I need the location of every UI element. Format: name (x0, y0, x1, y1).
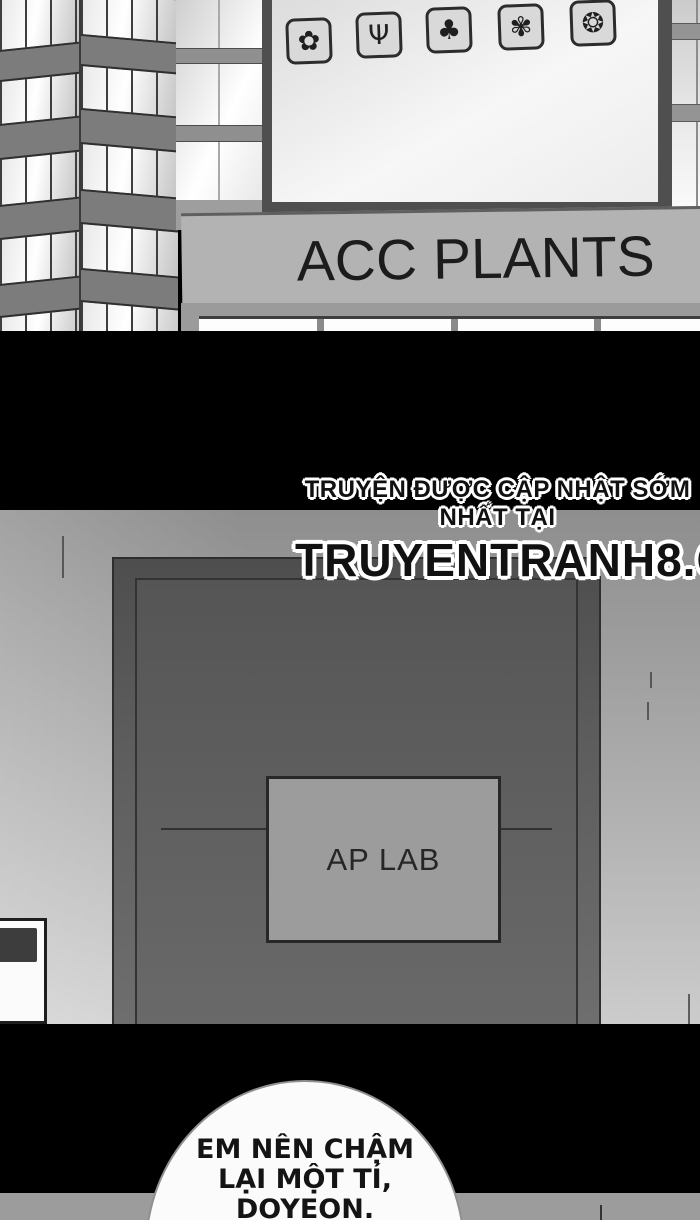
watermark-site-url: TRUYENTRANH8.COM (295, 533, 700, 587)
lab-door-sign-text: AP LAB (326, 842, 440, 878)
building-right-face (79, 0, 178, 331)
plant-shop-signboard: ✿ Ψ ♣ ✾ ❂ (262, 0, 672, 214)
building-left-face (0, 0, 79, 331)
panel-line-mark (600, 1205, 602, 1220)
window-row (0, 230, 79, 286)
comic-page: ✿ Ψ ♣ ✾ ❂ ACC PLANTS (0, 0, 700, 1220)
panel-city-night: ✿ Ψ ♣ ✾ ❂ ACC PLANTS (0, 0, 700, 331)
window-row (0, 150, 79, 207)
edge-building (672, 0, 700, 215)
facade-band (176, 125, 264, 142)
clover-icon: ♣ (425, 6, 473, 54)
sunflower-icon: ❂ (569, 0, 617, 47)
storefront (181, 303, 700, 331)
window-row (81, 142, 178, 199)
storefront-post (594, 319, 601, 331)
watermark-tagline: TRUYỆN ĐƯỢC CẬP NHẬT SỚM NHẤT TẠI (295, 476, 700, 532)
window-mullion (218, 0, 220, 230)
wall-scratch (647, 702, 649, 720)
facade-band (672, 104, 700, 122)
lab-door-panel: AP LAB (135, 578, 578, 1024)
speech-bubble-text: EM NÊN CHẬM LẠI MỘT TÍ, DOYEON. ĐỪNG ÉP … (145, 1135, 465, 1220)
site-watermark: TRUYỆN ĐƯỢC CẬP NHẬT SỚM NHẤT TẠI TRUYEN… (295, 476, 700, 587)
shop-banner-text: ACC PLANTS (181, 223, 700, 296)
wall-scratch (62, 536, 64, 578)
kiosk-screen (0, 928, 37, 962)
shop-banner: ACC PLANTS (181, 206, 700, 312)
wall-scratch (650, 672, 652, 688)
lab-door: AP LAB (112, 557, 601, 1024)
storefront-glass (199, 316, 700, 331)
rose-icon: ✿ (285, 17, 333, 65)
storefront-post (317, 319, 324, 331)
cactus-icon: Ψ (355, 11, 403, 59)
lab-door-sign: AP LAB (266, 776, 501, 943)
speech-line-1: EM NÊN CHẬM (145, 1135, 465, 1165)
flower-icon: ✾ (497, 3, 545, 51)
storefront-post (451, 319, 458, 331)
facade-band (176, 48, 264, 64)
panel-lab-door: AP LAB (0, 510, 700, 1024)
window-row (81, 222, 178, 278)
facade-band (672, 23, 700, 40)
wall-scratch (688, 994, 690, 1024)
glass-building (176, 0, 264, 230)
speech-line-2: LẠI MỘT TÍ, DOYEON. (145, 1165, 465, 1220)
wall-kiosk (0, 918, 47, 1024)
